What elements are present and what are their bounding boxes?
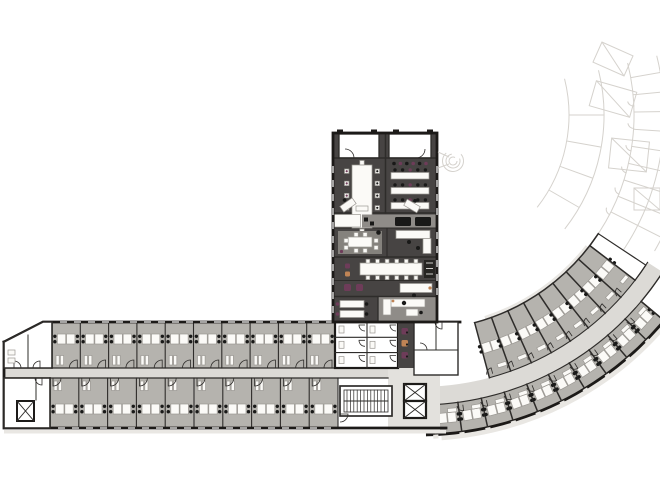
- ghost-room: [589, 81, 637, 118]
- waiting-corridor: [398, 322, 414, 368]
- spiral-stair-icon: [438, 152, 463, 171]
- lounge-band: [335, 215, 438, 228]
- elevator-west: [17, 401, 34, 421]
- south-plinth: [4, 430, 446, 434]
- elevator-core-east: [404, 384, 426, 418]
- floor-plan-drawing: [0, 0, 660, 500]
- entry-vestibule: [389, 134, 431, 158]
- central-wing: [333, 130, 437, 323]
- kitchenette: [379, 297, 437, 322]
- main-corridor: [4, 368, 390, 378]
- wc-block: [335, 322, 398, 368]
- meeting-room: [338, 230, 382, 254]
- floor-plan: [0, 0, 660, 500]
- east-service-rooms: [414, 322, 458, 375]
- curved-wing: [426, 234, 660, 439]
- staircase: [340, 386, 392, 422]
- entry-vestibule: [339, 134, 379, 158]
- ghost-room: [634, 188, 660, 210]
